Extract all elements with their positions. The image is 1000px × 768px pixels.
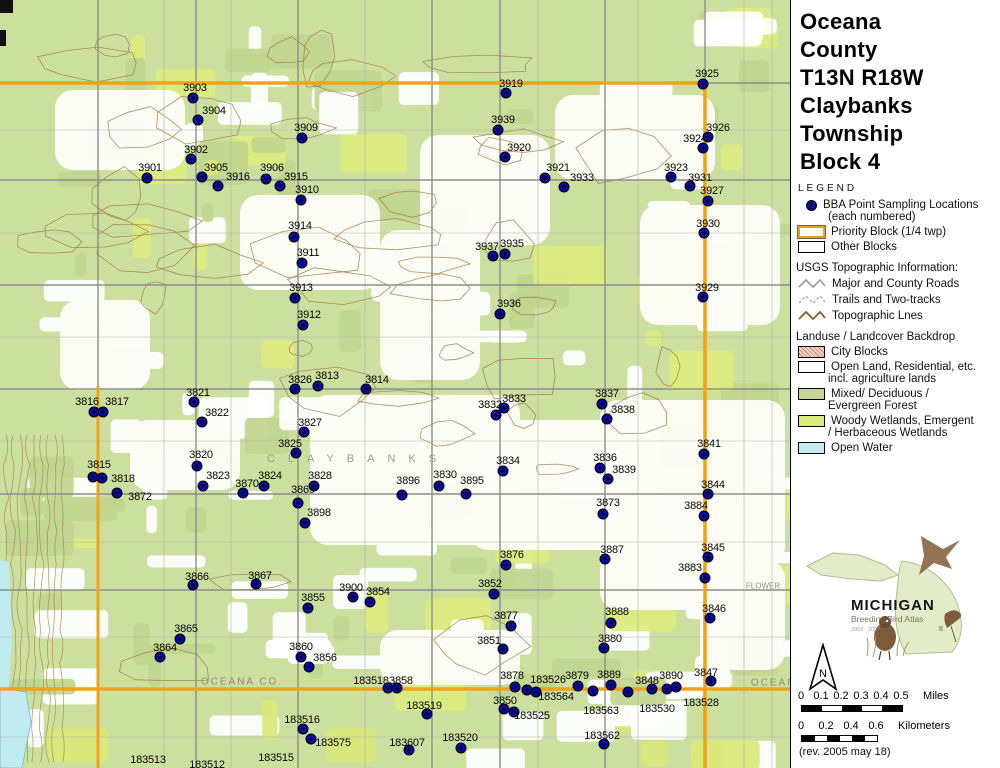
legend-heading: LEGEND bbox=[798, 183, 1000, 194]
title-line: Township bbox=[800, 120, 1000, 148]
map-annotation: FLOWER bbox=[746, 582, 780, 591]
scalebar-tick: 0.6 bbox=[868, 720, 883, 732]
sampling-point-label: 3818 bbox=[111, 473, 135, 485]
sampling-point-label: 183519 bbox=[406, 700, 442, 712]
sampling-point-dot[interactable] bbox=[597, 399, 608, 410]
sampling-point-dot[interactable] bbox=[501, 560, 512, 571]
sampling-point-dot[interactable] bbox=[700, 573, 711, 584]
scalebar-miles: 00.10.20.30.40.5Miles bbox=[799, 690, 997, 714]
sampling-point-label: 3858 bbox=[389, 675, 413, 687]
sampling-point-label: 3841 bbox=[697, 438, 721, 450]
sampling-point-label: 183525 bbox=[514, 710, 550, 722]
sampling-point-label: 3911 bbox=[297, 247, 320, 259]
sampling-point-label: 3935 bbox=[500, 238, 524, 250]
sampling-point-label: 3860 bbox=[289, 641, 313, 653]
sampling-point-label: 3848 bbox=[635, 675, 659, 687]
legend-item-bba-points: BBA Point Sampling Locations bbox=[798, 199, 1000, 211]
sampling-point-label: 183562 bbox=[584, 730, 620, 742]
sampling-point-label: 3837 bbox=[595, 388, 619, 400]
sampling-point-label: 183607 bbox=[389, 737, 425, 749]
sampling-point-label: 183513 bbox=[130, 754, 166, 766]
usgs-section-heading: USGS Topographic Information: bbox=[796, 262, 1000, 274]
sampling-point-label: 3816 bbox=[75, 396, 99, 408]
sampling-point-label: 3813 bbox=[315, 370, 339, 382]
sampling-point-label: 3856 bbox=[313, 652, 337, 664]
sampling-point-dot[interactable] bbox=[510, 682, 521, 693]
sampling-point-dot[interactable] bbox=[671, 682, 682, 693]
sampling-point-dot[interactable] bbox=[573, 681, 584, 692]
sampling-point-dot[interactable] bbox=[300, 518, 311, 529]
scalebar-unit: Kilometers bbox=[898, 720, 950, 732]
map-title: Oceana County T13N R18W Claybanks Townsh… bbox=[800, 8, 1000, 176]
sampling-point-label: 3847 bbox=[694, 667, 718, 679]
sampling-point-label: 3830 bbox=[433, 469, 457, 481]
sampling-point-label: 183512 bbox=[189, 759, 225, 768]
sampling-point-dot[interactable] bbox=[606, 618, 617, 629]
sampling-point-label: 3844 bbox=[701, 479, 725, 491]
sampling-point-label: 3822 bbox=[205, 407, 229, 419]
sampling-point-label: 3852 bbox=[478, 578, 502, 590]
sampling-point-dot[interactable] bbox=[699, 449, 710, 460]
scalebar-tick: 0.1 bbox=[813, 690, 828, 702]
sampling-point-label: 3872 bbox=[128, 491, 152, 503]
sampling-point-label: 3888 bbox=[605, 606, 629, 618]
legend-item-city-blocks: City Blocks bbox=[798, 346, 1000, 358]
sampling-point-label: 3836 bbox=[593, 452, 617, 464]
map-backdrop bbox=[0, 0, 790, 768]
sampling-point-label: 3866 bbox=[185, 571, 209, 583]
sampling-point-label: 183518 bbox=[353, 675, 389, 687]
legend-item-label2: / Herbaceous Wetlands bbox=[828, 427, 1000, 439]
scalebar-kilometers: 00.20.40.6Kilometers bbox=[799, 720, 997, 744]
sampling-point-label: 3901 bbox=[138, 162, 162, 174]
sampling-point-dot[interactable] bbox=[489, 589, 500, 600]
wetland-swatch bbox=[798, 415, 825, 427]
sampling-point-dot[interactable] bbox=[112, 488, 123, 499]
sampling-point-label: 3921 bbox=[546, 162, 570, 174]
sampling-point-label: 183515 bbox=[258, 752, 294, 764]
sampling-point-label: 3926 bbox=[706, 122, 730, 134]
other-blocks-swatch bbox=[798, 241, 825, 253]
sampling-point-label: 3878 bbox=[500, 670, 524, 682]
sampling-point-dot[interactable] bbox=[296, 195, 307, 206]
sampling-point-dot[interactable] bbox=[296, 652, 307, 663]
sampling-point-label: 3865 bbox=[174, 623, 198, 635]
sampling-point-label: 183563 bbox=[583, 705, 619, 717]
sampling-point-label: 3817 bbox=[105, 396, 129, 408]
sampling-point-label: 3900 bbox=[339, 582, 363, 594]
sampling-point-label: 3883 bbox=[678, 562, 702, 574]
sampling-point-label: 183516 bbox=[284, 714, 320, 726]
sampling-point-dot[interactable] bbox=[703, 196, 714, 207]
legend-item-label: Open Land, Residential, etc. bbox=[831, 361, 976, 373]
legend-item-label2: incl. agriculture lands bbox=[828, 373, 1000, 385]
revision-note: (rev. 2005 may 18) bbox=[799, 746, 891, 758]
sampling-point-label: 183520 bbox=[442, 732, 478, 744]
legend-item-other-blocks: Other Blocks bbox=[798, 241, 1000, 253]
scalebar-bar bbox=[801, 735, 878, 742]
sampling-point-label: 3876 bbox=[500, 549, 524, 561]
sampling-point-dot[interactable] bbox=[598, 509, 609, 520]
legend-item-major-roads: Major and County Roads bbox=[798, 277, 1000, 290]
sampling-point-dot[interactable] bbox=[699, 511, 710, 522]
sampling-point-label: 3890 bbox=[659, 670, 683, 682]
sampling-point-dot[interactable] bbox=[495, 309, 506, 320]
sampling-point-label: 3839 bbox=[612, 464, 636, 476]
sampling-point-label: 3845 bbox=[701, 542, 725, 554]
sampling-point-label: 3838 bbox=[611, 404, 635, 416]
sampling-point-label: 3895 bbox=[460, 475, 484, 487]
legend-item-priority-block: Priority Block (1/4 twp) bbox=[798, 226, 1000, 238]
legend-item-open-water: Open Water bbox=[798, 442, 1000, 454]
sampling-point-label: 3887 bbox=[600, 544, 624, 556]
sampling-point-dot[interactable] bbox=[298, 320, 309, 331]
map-annotation: OCEANA CO. bbox=[201, 677, 283, 688]
michigan-up-shape bbox=[807, 553, 898, 581]
sampling-point-label: 3814 bbox=[365, 374, 389, 386]
sampling-point-label: 3832 bbox=[478, 399, 502, 411]
sampling-point-label: 3884 bbox=[684, 500, 708, 512]
sampling-point-label: 3827 bbox=[298, 417, 322, 429]
sampling-point-label: 3879 bbox=[565, 670, 589, 682]
scalebar-tick: 0.4 bbox=[843, 720, 858, 732]
legend-item-label: Mixed/ Deciduous / bbox=[831, 388, 929, 400]
sampling-point-label: 3910 bbox=[295, 184, 319, 196]
sampling-point-dot[interactable] bbox=[97, 473, 108, 484]
sampling-point-label: 3834 bbox=[496, 455, 520, 467]
legend-item-sublabel: (each numbered) bbox=[828, 211, 1000, 223]
sampling-point-dot[interactable] bbox=[365, 597, 376, 608]
bba-point-icon bbox=[806, 200, 817, 211]
forest-swatch bbox=[798, 388, 825, 400]
trails-zigzag-icon bbox=[798, 293, 826, 306]
sampling-point-dot[interactable] bbox=[588, 686, 599, 697]
sampling-point-dot[interactable] bbox=[293, 498, 304, 509]
topo-zigzag-icon bbox=[798, 309, 826, 322]
sampling-point-dot[interactable] bbox=[397, 490, 408, 501]
landuse-section-heading: Landuse / Landcover Backdrop bbox=[796, 331, 1000, 343]
sampling-point-label: 3850 bbox=[493, 695, 517, 707]
sampling-point-label: 3912 bbox=[297, 309, 321, 321]
sampling-point-dot[interactable] bbox=[289, 232, 300, 243]
title-line: Claybanks bbox=[800, 92, 1000, 120]
sampling-point-label: 3902 bbox=[184, 144, 208, 156]
sampling-point-dot[interactable] bbox=[188, 93, 199, 104]
sampling-point-label: 183575 bbox=[315, 737, 351, 749]
sampling-point-dot[interactable] bbox=[142, 173, 153, 184]
sampling-point-label: 3846 bbox=[702, 603, 726, 615]
scalebar-tick: 0.3 bbox=[853, 690, 868, 702]
svg-text:Breeding Bird Atlas: Breeding Bird Atlas bbox=[851, 614, 923, 624]
sampling-point-dot[interactable] bbox=[500, 249, 511, 260]
sampling-point-label: 3889 bbox=[597, 669, 621, 681]
sampling-point-label: 3936 bbox=[497, 298, 521, 310]
sampling-point-dot[interactable] bbox=[559, 182, 570, 193]
scalebar-tick: 0.2 bbox=[833, 690, 848, 702]
sampling-point-label: 3909 bbox=[294, 122, 318, 134]
north-arrow-icon: N bbox=[805, 642, 841, 694]
sampling-point-label: 183564 bbox=[538, 691, 574, 703]
legend-item-label: Open Water bbox=[831, 442, 893, 454]
sampling-point-label: 3896 bbox=[396, 475, 420, 487]
sampling-point-dot[interactable] bbox=[297, 133, 308, 144]
sampling-point-label: 3930 bbox=[696, 218, 720, 230]
sampling-point-label: 183528 bbox=[683, 697, 719, 709]
sampling-point-label: 3825 bbox=[278, 438, 302, 450]
legend-item-wetlands: Woody Wetlands, Emergent bbox=[798, 415, 1000, 427]
sampling-point-label: 3820 bbox=[189, 449, 213, 461]
scalebar-tick: 0 bbox=[798, 690, 804, 702]
sampling-point-label: 3933 bbox=[570, 172, 594, 184]
svg-text:MICHIGAN: MICHIGAN bbox=[851, 597, 935, 614]
open-water-swatch bbox=[798, 442, 825, 454]
sampling-point-label: 3906 bbox=[260, 162, 284, 174]
sampling-point-label: 3851 bbox=[477, 635, 501, 647]
sampling-point-dot[interactable] bbox=[623, 687, 634, 698]
sampling-point-label: 3854 bbox=[366, 586, 390, 598]
sampling-point-dot[interactable] bbox=[261, 174, 272, 185]
sampling-point-label: 3905 bbox=[204, 162, 228, 174]
sampling-point-dot[interactable] bbox=[192, 461, 203, 472]
legend-item-label2: Evergreen Forest bbox=[828, 400, 1000, 412]
sampling-point-label: 3870 bbox=[235, 478, 259, 490]
scalebar-bar bbox=[801, 705, 903, 712]
sampling-point-label: 3925 bbox=[695, 68, 719, 80]
legend-panel: Oceana County T13N R18W Claybanks Townsh… bbox=[790, 0, 1000, 768]
scalebar-tick: 0.5 bbox=[893, 690, 908, 702]
sampling-point-dot[interactable] bbox=[493, 125, 504, 136]
legend-item-label: Priority Block (1/4 twp) bbox=[831, 226, 946, 238]
sampling-point-label: 3927 bbox=[700, 185, 724, 197]
sampling-point-dot[interactable] bbox=[498, 466, 509, 477]
scalebar-unit: Miles bbox=[923, 690, 949, 702]
roads-zigzag-icon bbox=[798, 277, 826, 290]
legend-item-label: Other Blocks bbox=[831, 241, 897, 253]
sampling-point-label: 3931 bbox=[688, 172, 712, 184]
legend-item-forest: Mixed/ Deciduous / bbox=[798, 388, 1000, 400]
sampling-point-dot[interactable] bbox=[290, 293, 301, 304]
map-canvas[interactable]: 3903390439093902390139053916390639153910… bbox=[0, 0, 790, 768]
sampling-point-label: 3916 bbox=[226, 171, 250, 183]
sampling-point-label: 3920 bbox=[507, 142, 531, 154]
title-line: County bbox=[800, 36, 1000, 64]
page: 3903390439093902390139053916390639153910… bbox=[0, 0, 1000, 768]
open-land-swatch bbox=[798, 361, 825, 373]
sampling-point-label: 3823 bbox=[206, 470, 230, 482]
title-line: Block 4 bbox=[800, 148, 1000, 176]
sampling-point-label: 3923 bbox=[664, 162, 688, 174]
sampling-point-label: 3855 bbox=[301, 592, 325, 604]
sampling-point-dot[interactable] bbox=[456, 743, 467, 754]
sampling-point-label: 3939 bbox=[491, 114, 515, 126]
scalebar-tick: 0.4 bbox=[873, 690, 888, 702]
legend-item-label: City Blocks bbox=[831, 346, 888, 358]
city-blocks-swatch bbox=[798, 346, 825, 358]
sampling-point-label: 3873 bbox=[596, 497, 620, 509]
sampling-point-label: 3821 bbox=[186, 387, 210, 399]
sampling-point-label: 3867 bbox=[248, 570, 272, 582]
sampling-point-label: 3937 bbox=[475, 241, 499, 253]
map-annotation: OCEANA bbox=[751, 678, 790, 689]
legend-item-label: Major and County Roads bbox=[832, 278, 959, 290]
sampling-point-label: 183526 bbox=[530, 674, 566, 686]
sampling-point-label: 3914 bbox=[288, 220, 312, 232]
title-line: Oceana bbox=[800, 8, 1000, 36]
legend-item-label: BBA Point Sampling Locations bbox=[823, 199, 978, 211]
sampling-point-dot[interactable] bbox=[198, 481, 209, 492]
sampling-point-label: 3929 bbox=[695, 282, 719, 294]
legend-item-trails: Trails and Two-tracks bbox=[798, 293, 1000, 306]
legend-item-label: Trails and Two-tracks bbox=[832, 294, 941, 306]
priority-block-swatch bbox=[798, 226, 825, 238]
sampling-point-label: 3924 bbox=[683, 133, 707, 145]
sampling-point-label: 3824 bbox=[258, 470, 282, 482]
sampling-point-label: 3913 bbox=[289, 282, 313, 294]
sampling-point-dot[interactable] bbox=[313, 381, 324, 392]
sampling-point-label: 3833 bbox=[502, 393, 526, 405]
sampling-point-dot[interactable] bbox=[461, 489, 472, 500]
sampling-point-label: 3869 bbox=[291, 484, 315, 496]
sampling-point-label: 3877 bbox=[494, 610, 518, 622]
sampling-point-label: 3898 bbox=[307, 507, 331, 519]
sampling-point-dot[interactable] bbox=[303, 603, 314, 614]
sampling-point-dot[interactable] bbox=[297, 258, 308, 269]
scalebar-tick: 0 bbox=[798, 720, 804, 732]
svg-text:2002 - 2007: 2002 - 2007 bbox=[851, 627, 880, 633]
sampling-point-dot[interactable] bbox=[606, 680, 617, 691]
sampling-point-label: 3828 bbox=[308, 470, 332, 482]
sampling-point-label: 183530 bbox=[639, 703, 675, 715]
sampling-point-dot[interactable] bbox=[595, 463, 606, 474]
sampling-point-dot[interactable] bbox=[259, 481, 270, 492]
sampling-point-label: 3904 bbox=[202, 105, 226, 117]
legend-item-topo-lines: Topographic Lnes bbox=[798, 309, 1000, 322]
title-line: T13N R18W bbox=[800, 64, 1000, 92]
sampling-point-label: 3903 bbox=[183, 82, 207, 94]
scalebar-tick: 0.2 bbox=[818, 720, 833, 732]
sampling-point-label: 3919 bbox=[499, 78, 523, 90]
sampling-point-label: 3915 bbox=[284, 171, 308, 183]
sampling-point-dot[interactable] bbox=[698, 79, 709, 90]
sampling-point-dot[interactable] bbox=[98, 407, 109, 418]
sampling-point-dot[interactable] bbox=[540, 173, 551, 184]
sampling-point-label: 3864 bbox=[153, 642, 177, 654]
legend-item-open-land: Open Land, Residential, etc. bbox=[798, 361, 1000, 373]
legend-item-label: Topographic Lnes bbox=[832, 310, 923, 322]
svg-text:N: N bbox=[819, 668, 827, 680]
sampling-point-dot[interactable] bbox=[434, 481, 445, 492]
sampling-point-dot[interactable] bbox=[213, 181, 224, 192]
sampling-point-label: 3880 bbox=[598, 633, 622, 645]
svg-text:II: II bbox=[939, 626, 943, 633]
sampling-point-label: 3815 bbox=[87, 459, 111, 471]
sampling-point-dot[interactable] bbox=[506, 621, 517, 632]
legend-item-label: Woody Wetlands, Emergent bbox=[831, 415, 974, 427]
sampling-point-label: 3826 bbox=[288, 374, 312, 386]
hawk-icon bbox=[919, 536, 960, 575]
